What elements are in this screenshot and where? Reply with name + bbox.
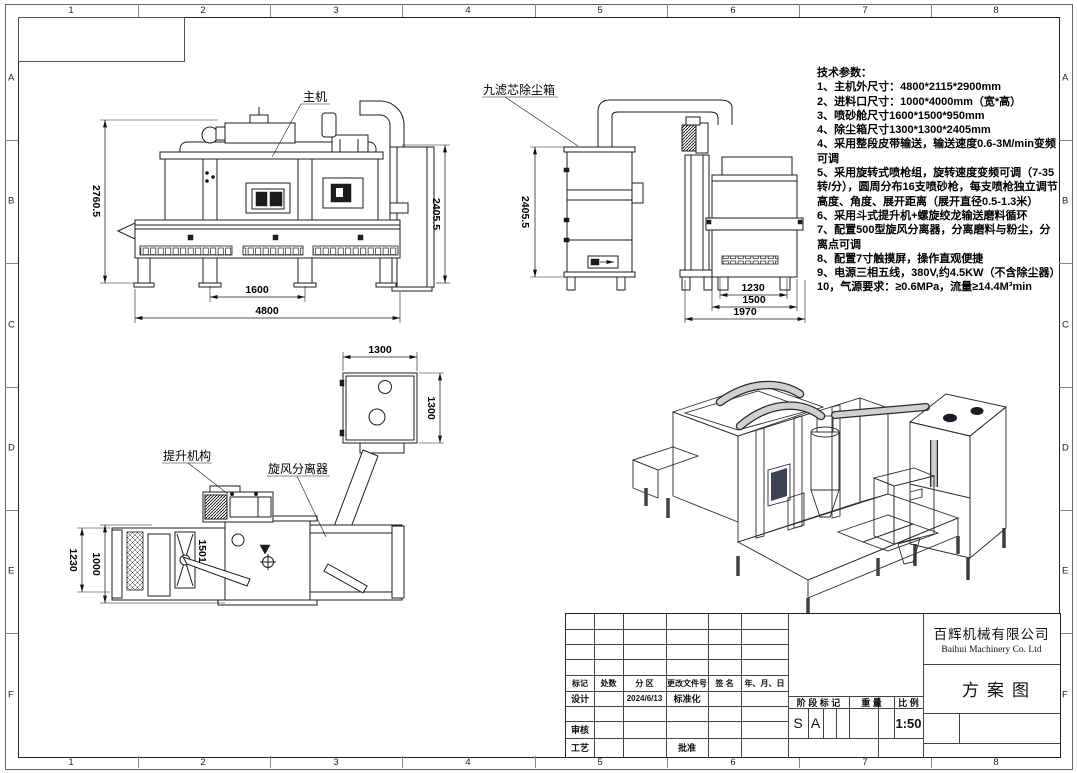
titleblock-gridline — [923, 743, 1060, 744]
dim-top-box-depth: 1300 — [425, 396, 437, 420]
rev-header-sign: 签 名 — [708, 675, 741, 691]
titleblock-gridline — [566, 644, 788, 645]
tech-spec-item: 7、配置500型旋风分离器，分离磨料与粉尘，分离点可调 — [817, 223, 1058, 252]
titleblock-gridline — [923, 713, 1060, 714]
dim-side-w1: 1230 — [741, 282, 765, 294]
dim-side-w2: 1500 — [742, 294, 766, 306]
tech-spec-item: 9、电源三相五线，380V,约4.5KW（不含除尘器） — [817, 266, 1058, 280]
approve-label: 批准 — [666, 738, 708, 757]
frame-col-label: 5 — [597, 5, 602, 16]
titleblock-gridline — [566, 706, 788, 707]
tech-spec-item: 5、采用旋转式喷枪组，旋转速度变频可调（7-35转/分），圆周分布16支喷砂枪，… — [817, 166, 1058, 209]
dim-front-height-right: 2405.5 — [430, 198, 442, 230]
frame-col-label: 7 — [862, 757, 867, 768]
tech-specs-title: 技术参数： — [817, 66, 1058, 80]
stage-mark-a: A — [808, 708, 823, 738]
top-view-drawing: 提升机构 旋风分离器 1300 1300 1230 1000 1501 — [60, 340, 460, 640]
dim-top-inner: 1501 — [196, 539, 208, 563]
company-name-cn: 百辉机械有限公司 — [923, 622, 1060, 644]
weight-header: 重 量 — [849, 696, 894, 708]
frame-tick — [1059, 140, 1072, 141]
rev-header-date: 年、月、日 — [741, 675, 788, 691]
tech-spec-item: 3、喷砂舱尺寸1600*1500*950mm — [817, 109, 1058, 123]
dim-front-width-total: 4800 — [255, 305, 279, 317]
process-label: 工艺 — [566, 738, 594, 757]
dim-side-height: 2405.5 — [519, 196, 531, 228]
side-view-machine — [564, 100, 803, 290]
dim-front-width-inner: 1600 — [245, 284, 269, 296]
top-view-machine — [112, 373, 417, 605]
frame-row-label: F — [8, 690, 14, 701]
dim-top-left-outer: 1230 — [67, 548, 79, 572]
titleblock-gridline — [823, 708, 824, 738]
dim-top-box-width: 1300 — [368, 344, 392, 356]
elevator-callout-label: 提升机构 — [163, 448, 211, 463]
frame-col-label: 2 — [200, 5, 205, 16]
frame-row-label: E — [8, 566, 14, 577]
tech-spec-item: 4、除尘箱尺寸1300*1300*2405mm — [817, 123, 1058, 137]
frame-tick — [402, 756, 403, 768]
frame-tick — [535, 4, 536, 17]
review-label: 审核 — [566, 721, 594, 738]
titleblock-gridline — [566, 659, 788, 660]
drawing-title: 方案图 — [923, 664, 1068, 713]
titleblock-gridline — [788, 738, 923, 739]
frame-tick — [270, 4, 271, 17]
frame-col-label: 6 — [730, 757, 735, 768]
frame-col-label: 5 — [597, 757, 602, 768]
tech-spec-item: 1、主机外尺寸：4800*2115*2900mm — [817, 80, 1058, 94]
frame-row-label: A — [1062, 73, 1068, 84]
frame-row-label: B — [1062, 196, 1068, 207]
frame-col-label: 6 — [730, 5, 735, 16]
dim-top-left-inner: 1000 — [90, 552, 102, 576]
title-block: 标记 处数 分 区 更改文件号 签 名 年、月、日 设计 2024/6/13 标… — [565, 613, 1061, 758]
isometric-view — [628, 352, 1064, 618]
rev-header-zone: 分 区 — [623, 675, 666, 691]
tech-spec-item: 4、采用整段皮带输送，输送速度0.6-3M/min变频可调 — [817, 137, 1058, 166]
dim-side-w3: 1970 — [733, 306, 757, 318]
frame-row-label: A — [8, 73, 14, 84]
standardization-label: 标准化 — [666, 691, 708, 706]
company-name-en: Baihui Machinery Co. Ltd — [923, 642, 1060, 658]
tech-spec-item: 8、配置7寸触摸屏，操作直观便捷 — [817, 252, 1058, 266]
iso-yellow-tag — [910, 489, 922, 500]
frame-col-label: 4 — [465, 757, 470, 768]
dust-box-callout-label: 九滤芯除尘箱 — [483, 82, 555, 97]
cyclone-callout-label: 旋风分离器 — [268, 461, 328, 476]
frame-tick — [5, 633, 18, 634]
tech-spec-item: 10，气源要求：≥0.6MPa，流量≥14.4M³min — [817, 280, 1058, 294]
frame-tick — [402, 4, 403, 17]
frame-tick — [138, 756, 139, 768]
titleblock-gridline — [566, 629, 788, 630]
frame-col-label: 3 — [333, 5, 338, 16]
iso-collector-top — [910, 394, 1006, 436]
rev-header-mark: 标记 — [566, 675, 594, 691]
stage-mark-s: S — [788, 708, 808, 738]
design-date: 2024/6/13 — [623, 691, 666, 706]
rev-header-count: 处数 — [594, 675, 623, 691]
frame-row-label: D — [8, 443, 15, 454]
frame-tick — [799, 4, 800, 17]
titleblock-gridline — [959, 713, 960, 743]
frame-tick — [270, 756, 271, 768]
tech-spec-item: 2、进料口尺寸：1000*4000mm（宽*高） — [817, 95, 1058, 109]
revision-box — [18, 17, 185, 62]
frame-col-label: 1 — [68, 5, 73, 16]
frame-col-label: 1 — [68, 757, 73, 768]
frame-col-label: 2 — [200, 757, 205, 768]
frame-tick — [1059, 263, 1072, 264]
dim-front-height-left: 2760.5 — [90, 185, 102, 217]
front-view-drawing: 主机 2760.5 2405.5 1600 4800 — [60, 85, 470, 343]
drawing-sheet: 1 2 3 4 5 6 7 8 1 2 3 4 5 6 7 8 A B C D … — [0, 0, 1077, 773]
frame-tick — [535, 756, 536, 768]
frame-col-label: 8 — [993, 5, 998, 16]
frame-row-label: C — [1062, 320, 1069, 331]
frame-tick — [138, 4, 139, 17]
rev-header-docno: 更改文件号 — [666, 675, 708, 691]
frame-col-label: 3 — [333, 757, 338, 768]
front-view-machine — [118, 101, 434, 291]
frame-col-label: 7 — [862, 5, 867, 16]
scale-value: 1:50 — [894, 708, 923, 738]
frame-col-label: 4 — [465, 5, 470, 16]
scale-header: 比 例 — [894, 696, 923, 708]
frame-tick — [5, 387, 18, 388]
design-label: 设计 — [566, 691, 594, 706]
side-view-drawing: 九滤芯除尘箱 2405.5 1230 1500 1970 — [460, 80, 812, 332]
frame-tick — [5, 263, 18, 264]
frame-tick — [5, 140, 18, 141]
titleblock-gridline — [836, 708, 837, 738]
titleblock-gridline — [566, 721, 788, 722]
tech-specs-block: 技术参数： 1、主机外尺寸：4800*2115*2900mm 2、进料口尺寸：1… — [817, 66, 1058, 295]
tech-spec-item: 6、采用斗式提升机+螺旋绞龙输送磨料循环 — [817, 209, 1058, 223]
side-view-callout: 九滤芯除尘箱 — [482, 82, 578, 146]
frame-row-label: C — [8, 320, 15, 331]
frame-tick — [667, 4, 668, 17]
frame-row-label: B — [8, 196, 14, 207]
frame-tick — [931, 4, 932, 17]
frame-col-label: 8 — [993, 757, 998, 768]
iso-dust-collector — [874, 394, 1006, 580]
iso-machine-body — [633, 384, 958, 614]
main-machine-callout-label: 主机 — [303, 90, 327, 104]
stage-header: 阶 段 标 记 — [788, 696, 849, 708]
frame-tick — [5, 510, 18, 511]
